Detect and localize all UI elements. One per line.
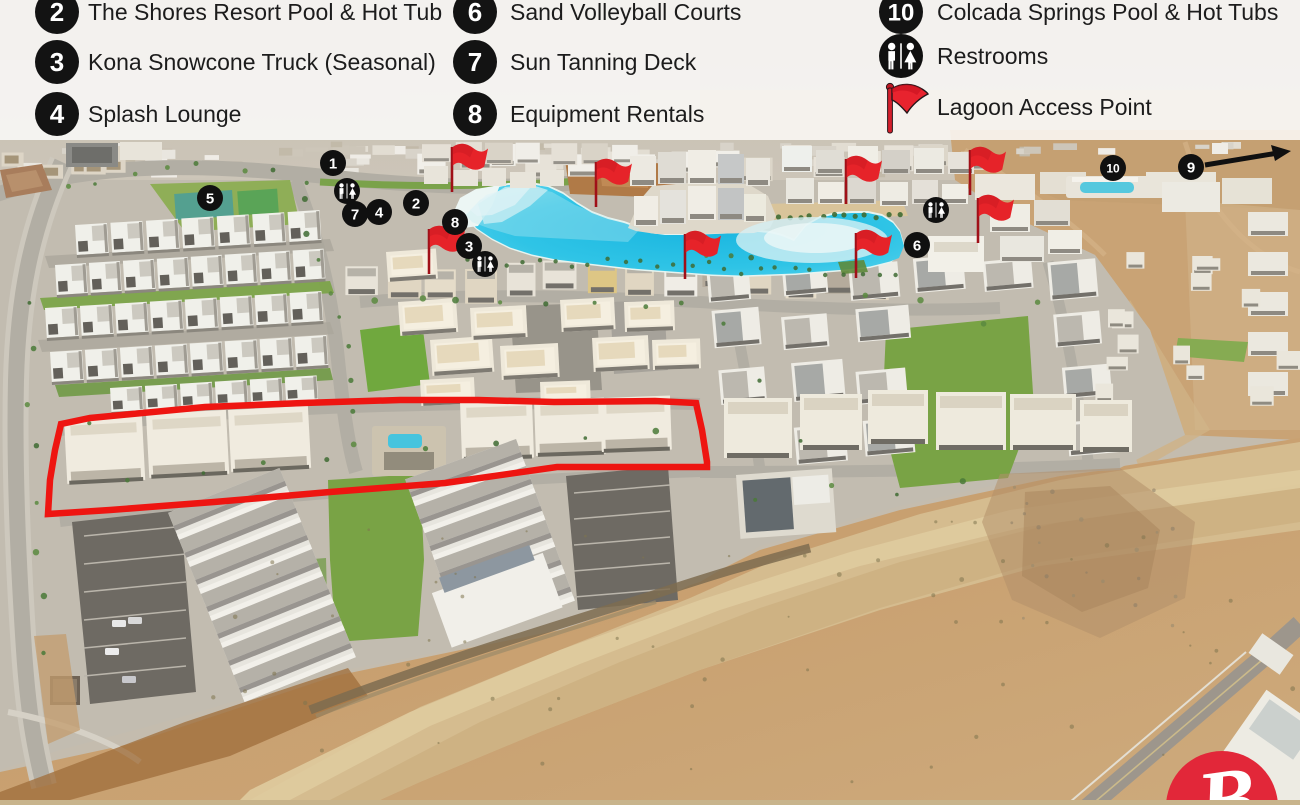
svg-text:2: 2: [412, 195, 420, 212]
svg-text:3: 3: [50, 47, 64, 77]
svg-text:7: 7: [351, 206, 359, 223]
svg-text:4: 4: [375, 204, 384, 221]
svg-text:6: 6: [913, 237, 921, 254]
svg-text:Colcada Springs Pool & Hot Tub: Colcada Springs Pool & Hot Tubs: [937, 0, 1278, 25]
svg-text:Restrooms: Restrooms: [937, 43, 1048, 69]
svg-text:9: 9: [1187, 159, 1195, 176]
svg-text:2: 2: [50, 0, 64, 27]
svg-text:10: 10: [888, 0, 915, 26]
svg-text:1: 1: [329, 155, 337, 172]
svg-text:4: 4: [50, 99, 65, 129]
svg-text:10: 10: [1106, 161, 1120, 175]
svg-text:Splash Lounge: Splash Lounge: [88, 101, 241, 127]
svg-text:8: 8: [468, 99, 482, 129]
svg-text:Sun Tanning Deck: Sun Tanning Deck: [510, 49, 697, 75]
svg-text:The Shores Resort Pool & Hot T: The Shores Resort Pool & Hot Tub: [88, 0, 442, 25]
svg-text:3: 3: [465, 238, 473, 255]
svg-text:Sand Volleyball Courts: Sand Volleyball Courts: [510, 0, 741, 25]
svg-text:7: 7: [468, 47, 482, 77]
svg-text:Lagoon Access Point: Lagoon Access Point: [937, 94, 1152, 120]
svg-text:6: 6: [468, 0, 482, 27]
svg-text:8: 8: [451, 214, 459, 231]
svg-text:Equipment Rentals: Equipment Rentals: [510, 101, 704, 127]
svg-text:5: 5: [206, 190, 214, 207]
svg-text:Kona Snowcone Truck (Seasonal): Kona Snowcone Truck (Seasonal): [88, 49, 436, 75]
